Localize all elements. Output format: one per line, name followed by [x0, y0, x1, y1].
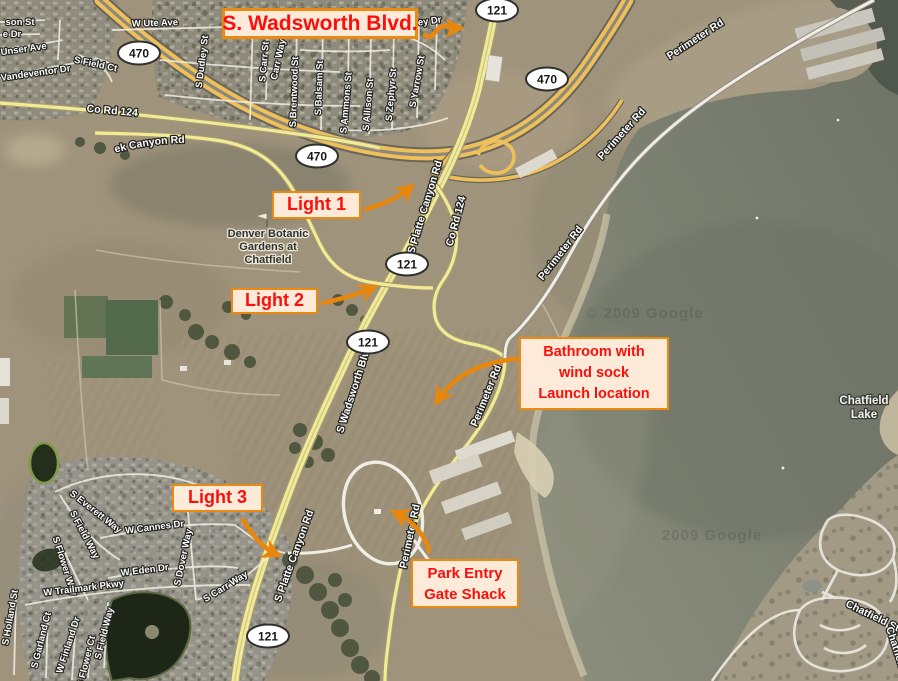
shield-121-4: 121: [247, 625, 289, 648]
google-watermark-2: 2009 Google: [662, 527, 762, 544]
road-label-s-balsam-st: S Balsam St: [313, 59, 326, 115]
callout-text-line1: Bathroom with: [543, 342, 645, 363]
road-label-e-dr: e Dr: [3, 29, 22, 40]
lake-label-line1: Chatfield: [839, 395, 888, 407]
shield-470-1: 470: [118, 42, 160, 65]
callout-text: Light 2: [245, 289, 304, 312]
svg-text:470: 470: [537, 73, 557, 87]
botanic-label-line3: Chatfield: [244, 254, 291, 266]
callout-light-3: Light 3: [172, 484, 263, 512]
botanic-label-line1: Denver Botanic: [228, 228, 309, 240]
callout-text-line1: Park Entry: [427, 563, 502, 584]
road-label-w-ute-ave: W Ute Ave: [132, 17, 179, 30]
svg-text:470: 470: [307, 150, 327, 164]
shield-121-3: 121: [347, 331, 389, 354]
callout-text-line2: Gate Shack: [424, 584, 506, 605]
campground-pond: [802, 580, 822, 592]
callout-bathroom-launch: Bathroom with wind sock Launch location: [519, 337, 669, 410]
green-pond: [30, 443, 58, 483]
svg-text:470: 470: [129, 47, 149, 61]
svg-text:121: 121: [397, 258, 417, 272]
callout-text: Light 3: [188, 486, 247, 509]
callout-s-wadsworth-blvd: S. Wadsworth Blvd.: [222, 8, 418, 39]
shield-470-3: 470: [526, 68, 568, 91]
botanic-label-line2: Gardens at: [239, 241, 297, 253]
callout-text-line3: Launch location: [538, 384, 649, 405]
google-watermark: © 2009 Google: [586, 305, 703, 322]
gate-shack-building: [374, 509, 381, 514]
shield-470-2: 470: [296, 145, 338, 168]
callout-text-line2: wind sock: [559, 363, 629, 384]
lake-label-line2: Lake: [851, 409, 877, 421]
annotated-satellite-map: © 2009 Google 2009 Google W Ute Ave ey D…: [0, 0, 898, 681]
svg-text:121: 121: [487, 4, 507, 18]
callout-text: Light 1: [287, 193, 346, 216]
callout-text: S. Wadsworth Blvd.: [222, 10, 417, 37]
callout-light-1: Light 1: [272, 191, 361, 219]
svg-text:121: 121: [358, 336, 378, 350]
callout-light-2: Light 2: [231, 288, 318, 314]
callout-park-entry-gate: Park Entry Gate Shack: [411, 559, 519, 608]
road-label-son-st: son St: [5, 17, 35, 28]
shield-121-1: 121: [476, 0, 518, 22]
shield-121-2: 121: [386, 253, 428, 276]
svg-text:121: 121: [258, 630, 278, 644]
